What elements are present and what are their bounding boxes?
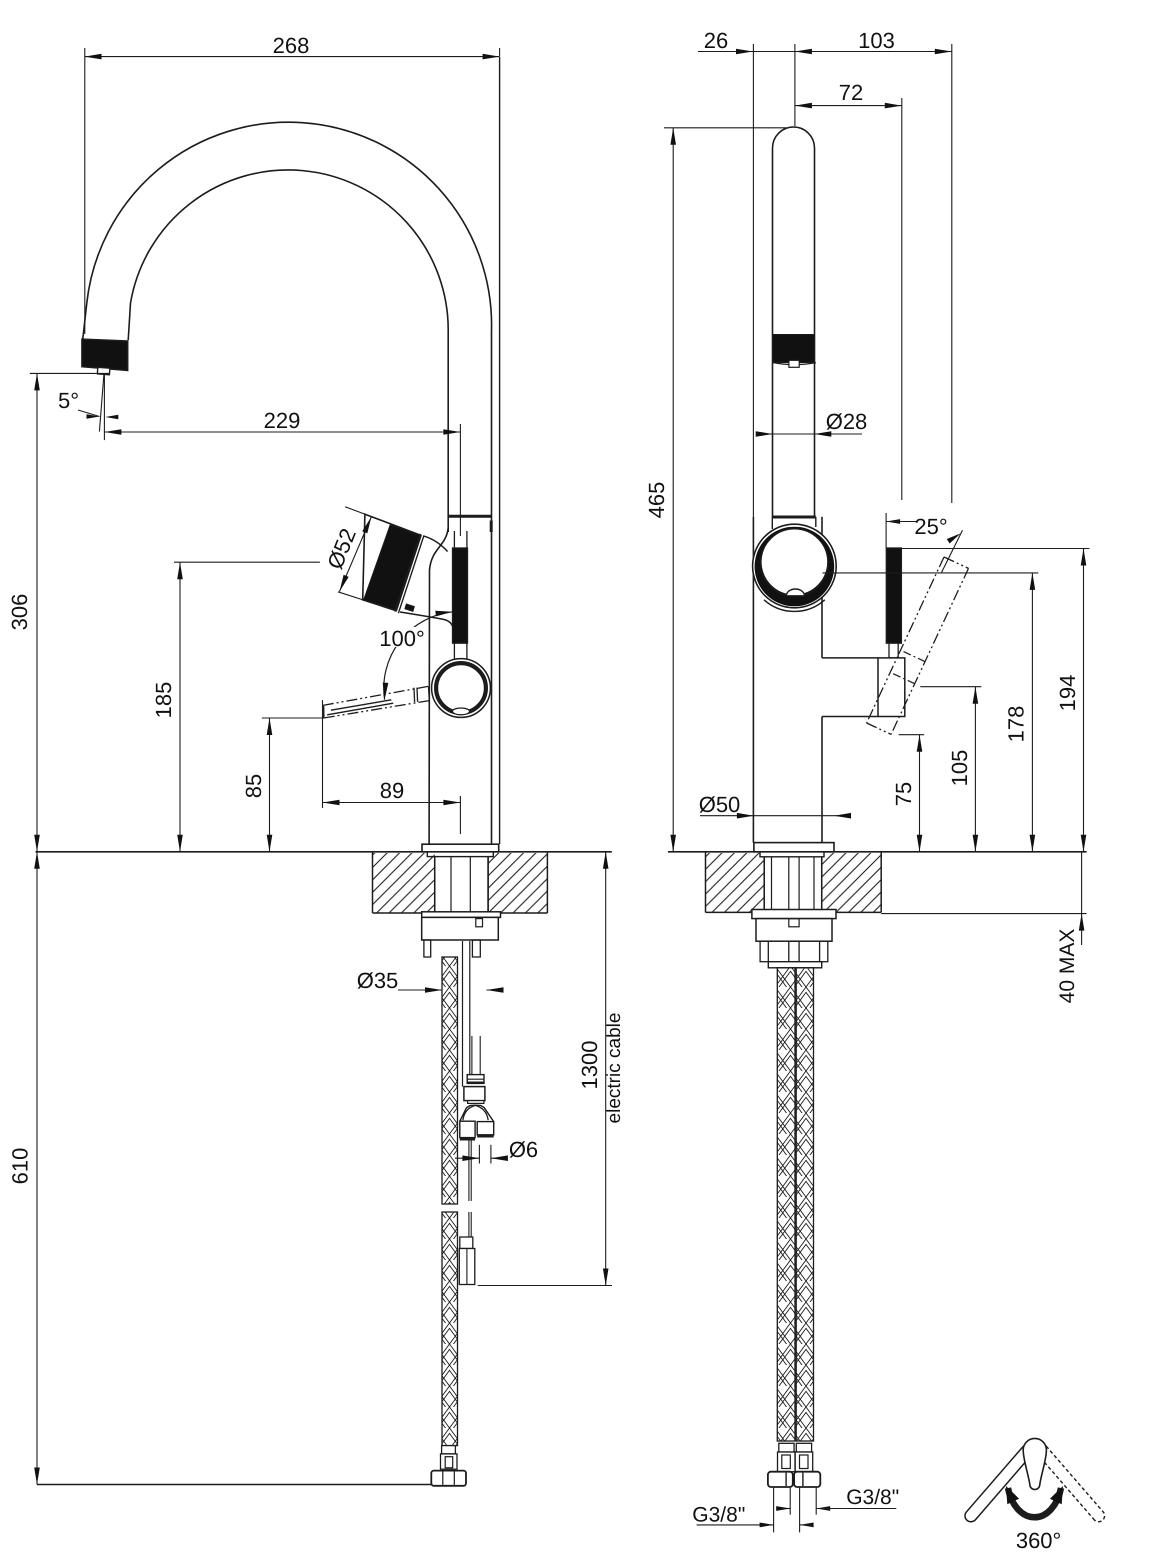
svg-text:Ø28: Ø28: [826, 409, 868, 434]
svg-text:360°: 360°: [1016, 1528, 1062, 1553]
svg-text:G3/8": G3/8": [692, 1504, 745, 1527]
svg-text:185: 185: [151, 682, 176, 719]
svg-text:89: 89: [380, 778, 404, 803]
svg-text:G3/8": G3/8": [846, 1486, 899, 1509]
svg-text:85: 85: [241, 774, 266, 798]
svg-text:103: 103: [858, 28, 895, 53]
svg-text:75: 75: [891, 782, 916, 806]
svg-text:105: 105: [947, 750, 972, 787]
svg-text:268: 268: [273, 33, 310, 58]
svg-text:26: 26: [704, 28, 728, 53]
svg-text:72: 72: [839, 80, 863, 105]
svg-text:40 MAX: 40 MAX: [1056, 929, 1079, 1004]
svg-text:306: 306: [7, 594, 32, 631]
svg-text:electric cable: electric cable: [604, 1013, 625, 1124]
svg-text:229: 229: [264, 408, 301, 433]
svg-text:178: 178: [1004, 706, 1029, 743]
svg-text:5°: 5°: [58, 388, 79, 413]
svg-text:Ø35: Ø35: [357, 968, 399, 993]
svg-text:194: 194: [1055, 675, 1080, 712]
svg-text:25°: 25°: [914, 514, 947, 539]
svg-text:100°: 100°: [379, 626, 425, 651]
svg-text:1300: 1300: [577, 1041, 602, 1090]
svg-text:465: 465: [644, 482, 669, 519]
svg-text:610: 610: [8, 1148, 33, 1185]
svg-text:Ø50: Ø50: [699, 792, 741, 817]
svg-text:Ø6: Ø6: [509, 1137, 538, 1162]
